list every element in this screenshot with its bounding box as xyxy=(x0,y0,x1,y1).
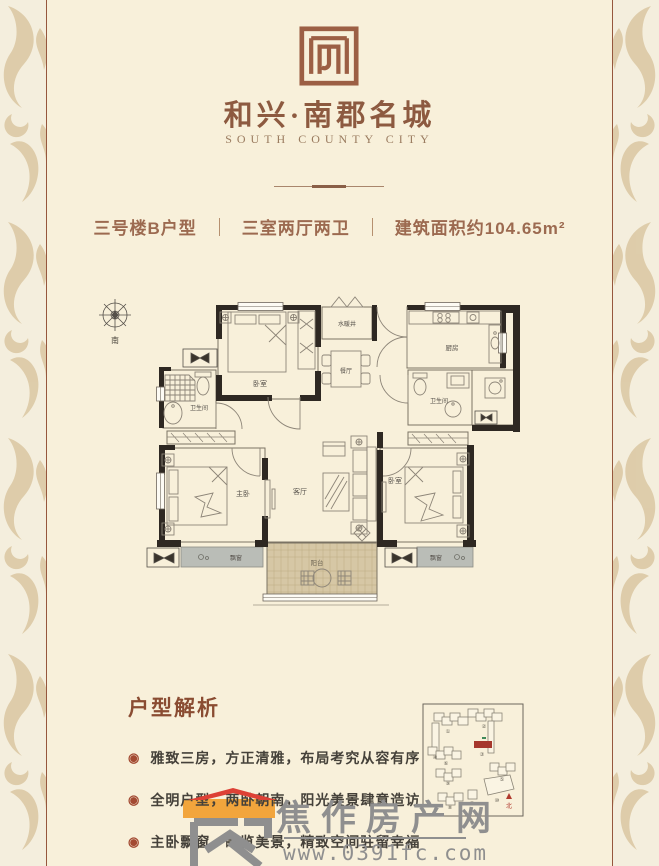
room-label-bedroom-right: 卧室 xyxy=(388,476,402,485)
room-label-dining: 餐厅 xyxy=(340,367,352,375)
north-arrow-icon xyxy=(506,793,512,799)
floor-area-label: 建筑面积约104.65m² xyxy=(395,214,566,239)
building-unit-label: 三号楼B户型 xyxy=(93,214,196,239)
separator xyxy=(372,218,373,236)
room-label-bay-right: 飘窗 xyxy=(430,554,442,562)
compass-south-label: 南 xyxy=(111,335,119,345)
list-item: ◉ 雅致三房，方正清雅，布局考究从容有序 xyxy=(128,748,420,768)
room-label-kitchen: 厨房 xyxy=(446,343,459,352)
compass-icon xyxy=(99,299,131,331)
floor-plan: 南 xyxy=(95,285,555,635)
bay-window-left xyxy=(181,547,263,567)
brand-seal-logo-icon xyxy=(299,26,359,91)
room-label-bath-right: 卫生间 xyxy=(430,397,448,405)
floorplan-poster: 和兴·南郡名城 SOUTH COUNTY CITY 三号楼B户型 三室两厅两卫 … xyxy=(0,0,659,866)
highlight-marker xyxy=(482,737,486,739)
unit-info-bar: 三号楼B户型 三室两厅两卫 建筑面积约104.65m² xyxy=(47,214,612,239)
watermark-divider xyxy=(284,837,466,839)
bullet-icon: ◉ xyxy=(128,750,140,766)
highlighted-building xyxy=(474,741,492,748)
watermark-logo-icon xyxy=(186,786,278,866)
building-number: ⑤ xyxy=(500,776,505,783)
ornamental-divider xyxy=(274,178,384,196)
room-label-bath-left: 卫生间 xyxy=(190,404,208,412)
room-label-master: 主卧 xyxy=(236,489,250,498)
building-number: ⑥ xyxy=(444,760,449,767)
building-number: ③ xyxy=(480,751,485,758)
watermark-url: www.0391fc.com xyxy=(283,841,488,865)
watermark-site-name: 焦作房产网 xyxy=(276,790,501,841)
building-number: ④ xyxy=(433,754,438,761)
room-label-bedroom-top: 卧室 xyxy=(253,379,267,388)
building-number: ⑨ xyxy=(446,780,451,787)
north-label: 北 xyxy=(506,802,512,810)
analysis-heading: 户型解析 xyxy=(128,692,420,722)
building-number: ② xyxy=(482,723,487,730)
bullet-icon: ◉ xyxy=(128,834,140,850)
analysis-bullet-text: 雅致三房，方正清雅，布局考究从容有序 xyxy=(150,748,420,768)
closet-hatch xyxy=(167,433,468,443)
building-number: ① xyxy=(446,728,451,735)
project-title: 和兴·南郡名城 xyxy=(0,92,659,134)
room-layout-label: 三室两厅两卫 xyxy=(242,214,350,239)
balcony-floor xyxy=(267,543,377,596)
room-label-living: 客厅 xyxy=(293,487,307,496)
separator xyxy=(219,218,220,236)
bullet-icon: ◉ xyxy=(128,792,140,808)
project-subtitle: SOUTH COUNTY CITY xyxy=(0,132,659,147)
room-label-bay-left: 飘窗 xyxy=(230,554,242,562)
room-label-balcony: 阳台 xyxy=(311,558,324,567)
floor-plan-drawing: 南 xyxy=(95,285,555,630)
room-label-water-well: 水暖井 xyxy=(338,320,356,328)
